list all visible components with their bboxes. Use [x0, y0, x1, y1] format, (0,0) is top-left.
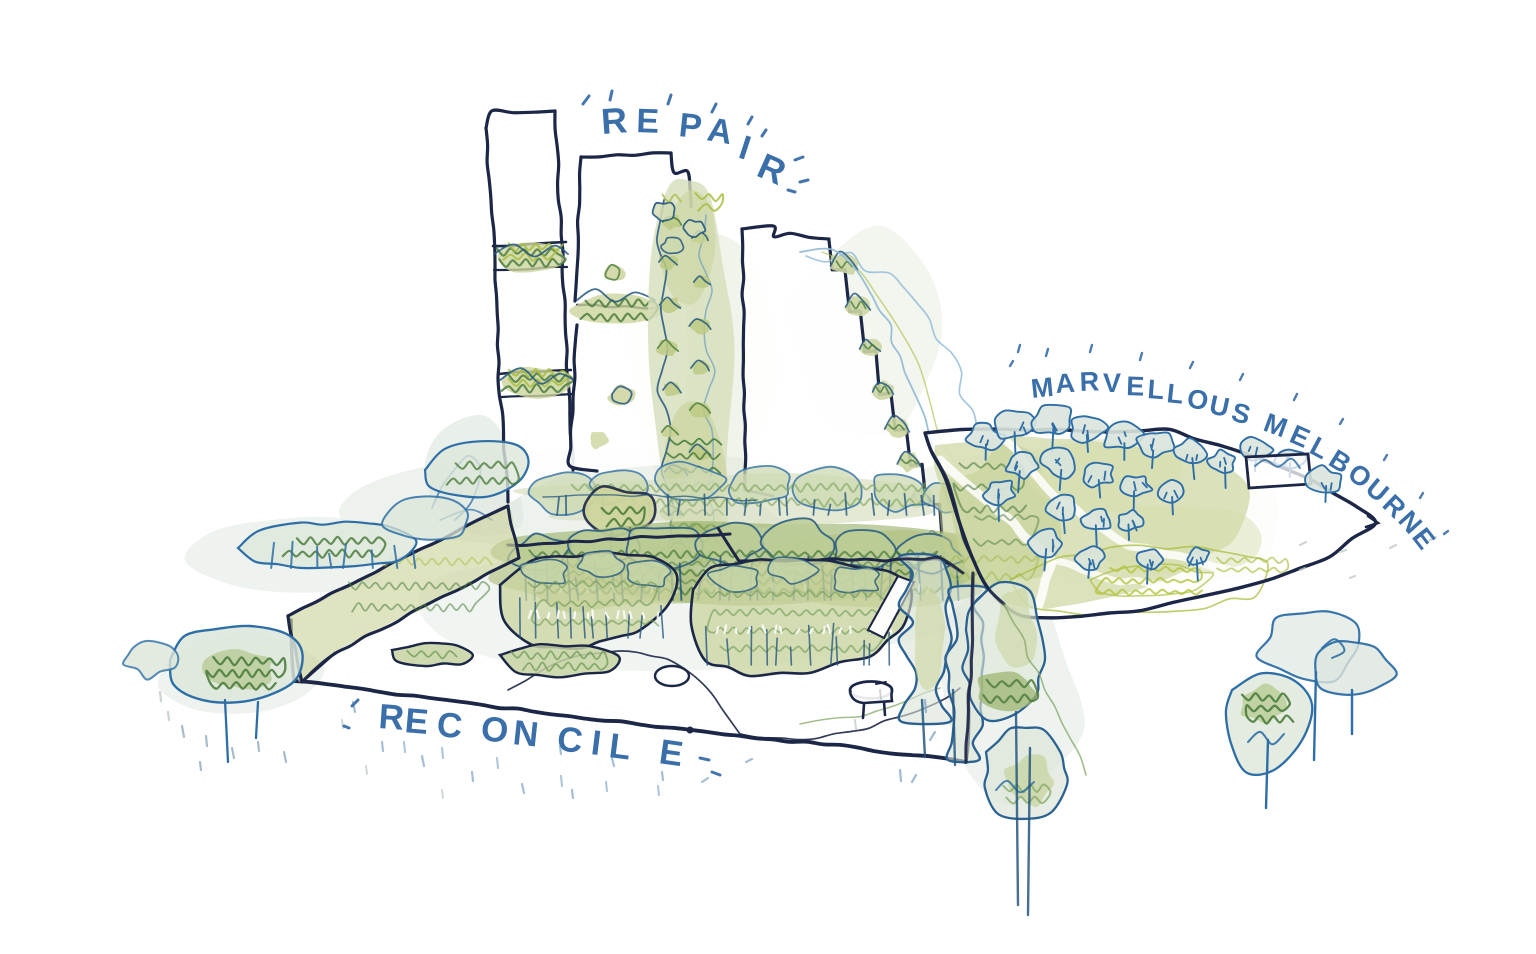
svg-text:O: O: [479, 709, 510, 751]
svg-text:C: C: [435, 705, 464, 746]
svg-text:E: E: [403, 701, 430, 742]
svg-text:M: M: [1029, 372, 1055, 404]
svg-text:L: L: [1147, 374, 1166, 405]
svg-text:E: E: [636, 102, 660, 141]
svg-text:L: L: [1165, 378, 1185, 410]
svg-text:P: P: [677, 106, 704, 146]
svg-text:E: E: [1126, 371, 1145, 402]
svg-text:C: C: [555, 719, 585, 761]
svg-text:R: R: [377, 697, 405, 738]
svg-text:R: R: [1079, 366, 1100, 397]
svg-text:V: V: [1103, 368, 1121, 398]
svg-text:R: R: [600, 99, 629, 142]
svg-text:A: A: [1054, 368, 1076, 399]
svg-text:N: N: [511, 713, 540, 754]
